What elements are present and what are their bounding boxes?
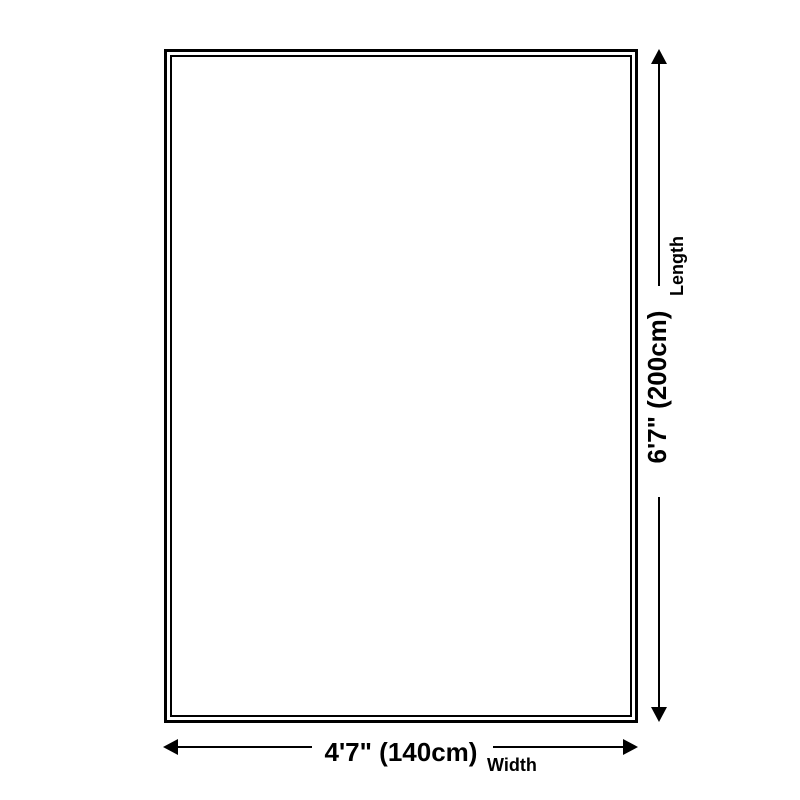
width-label: Width xyxy=(487,755,537,775)
length-label: Length xyxy=(667,236,687,296)
length-value: 6'7" (200cm) xyxy=(639,307,675,467)
arrow-left-icon xyxy=(163,739,178,755)
width-value: 4'7" (140cm) xyxy=(321,737,481,767)
width-dimension-line-left xyxy=(177,746,312,748)
length-dimension-line-top xyxy=(658,62,660,286)
dimension-diagram: Length 6'7" (200cm) 4'7" (140cm) Width xyxy=(0,0,800,800)
width-dimension-line-right xyxy=(493,746,624,748)
length-dimension-line-bottom xyxy=(658,497,660,709)
arrow-right-icon xyxy=(623,739,638,755)
product-inner-border xyxy=(170,55,632,717)
product-outline xyxy=(164,49,638,723)
arrow-down-icon xyxy=(651,707,667,722)
